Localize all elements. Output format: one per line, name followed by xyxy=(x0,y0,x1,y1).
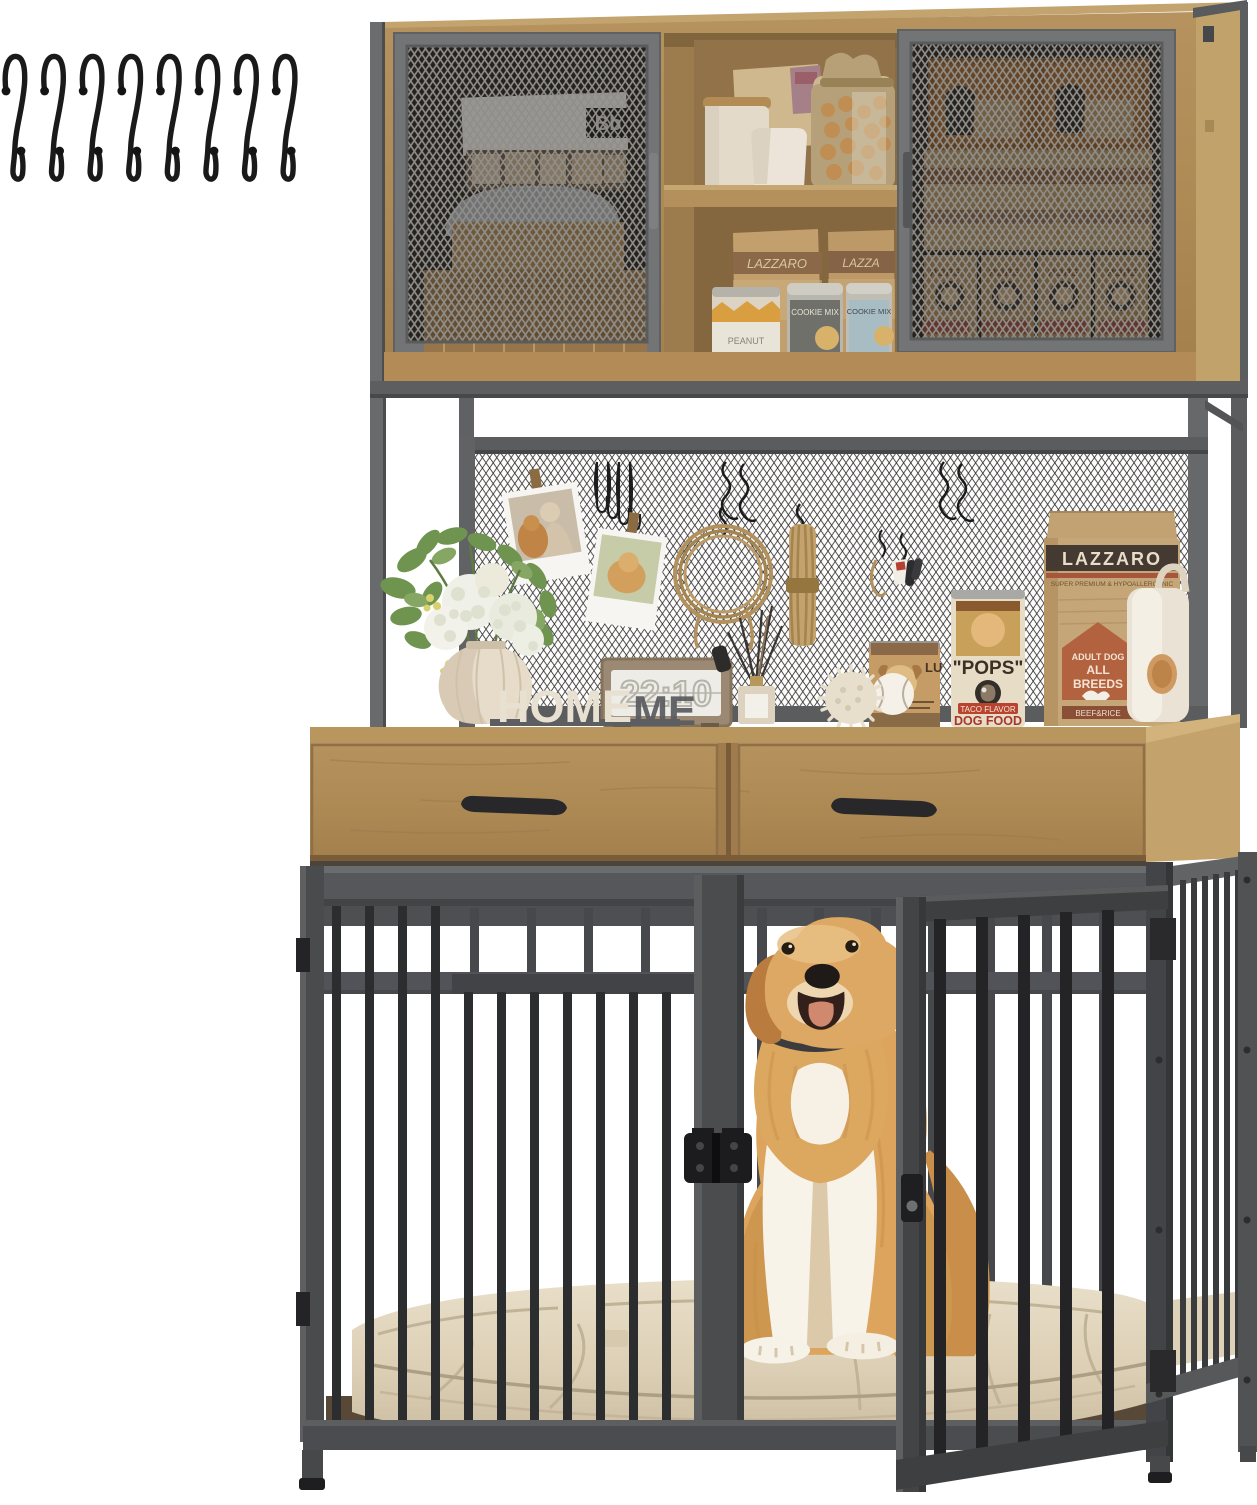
svg-text:HOME: HOME xyxy=(497,681,632,732)
svg-text:LAZZARO: LAZZARO xyxy=(1062,549,1162,569)
svg-text:LAZZA: LAZZA xyxy=(842,256,879,270)
svg-text:ADULT DOG: ADULT DOG xyxy=(1072,652,1125,662)
svg-text:LU: LU xyxy=(925,660,942,675)
svg-text:LAZZARO: LAZZARO xyxy=(747,256,807,271)
svg-text:ME: ME xyxy=(633,687,696,734)
svg-text:PEANUT: PEANUT xyxy=(728,336,765,346)
svg-text:"POPS": "POPS" xyxy=(953,658,1024,679)
svg-text:DOG FOOD: DOG FOOD xyxy=(954,714,1022,728)
svg-text:BREEDS: BREEDS xyxy=(1073,677,1123,691)
svg-text:BEEF&RICE: BEEF&RICE xyxy=(1075,709,1120,718)
svg-text:TACO FLAVOR: TACO FLAVOR xyxy=(960,705,1015,714)
svg-text:ALL: ALL xyxy=(1086,663,1109,677)
svg-text:COOKIE MIX: COOKIE MIX xyxy=(847,307,892,316)
svg-text:COOKIE MIX: COOKIE MIX xyxy=(791,308,839,317)
